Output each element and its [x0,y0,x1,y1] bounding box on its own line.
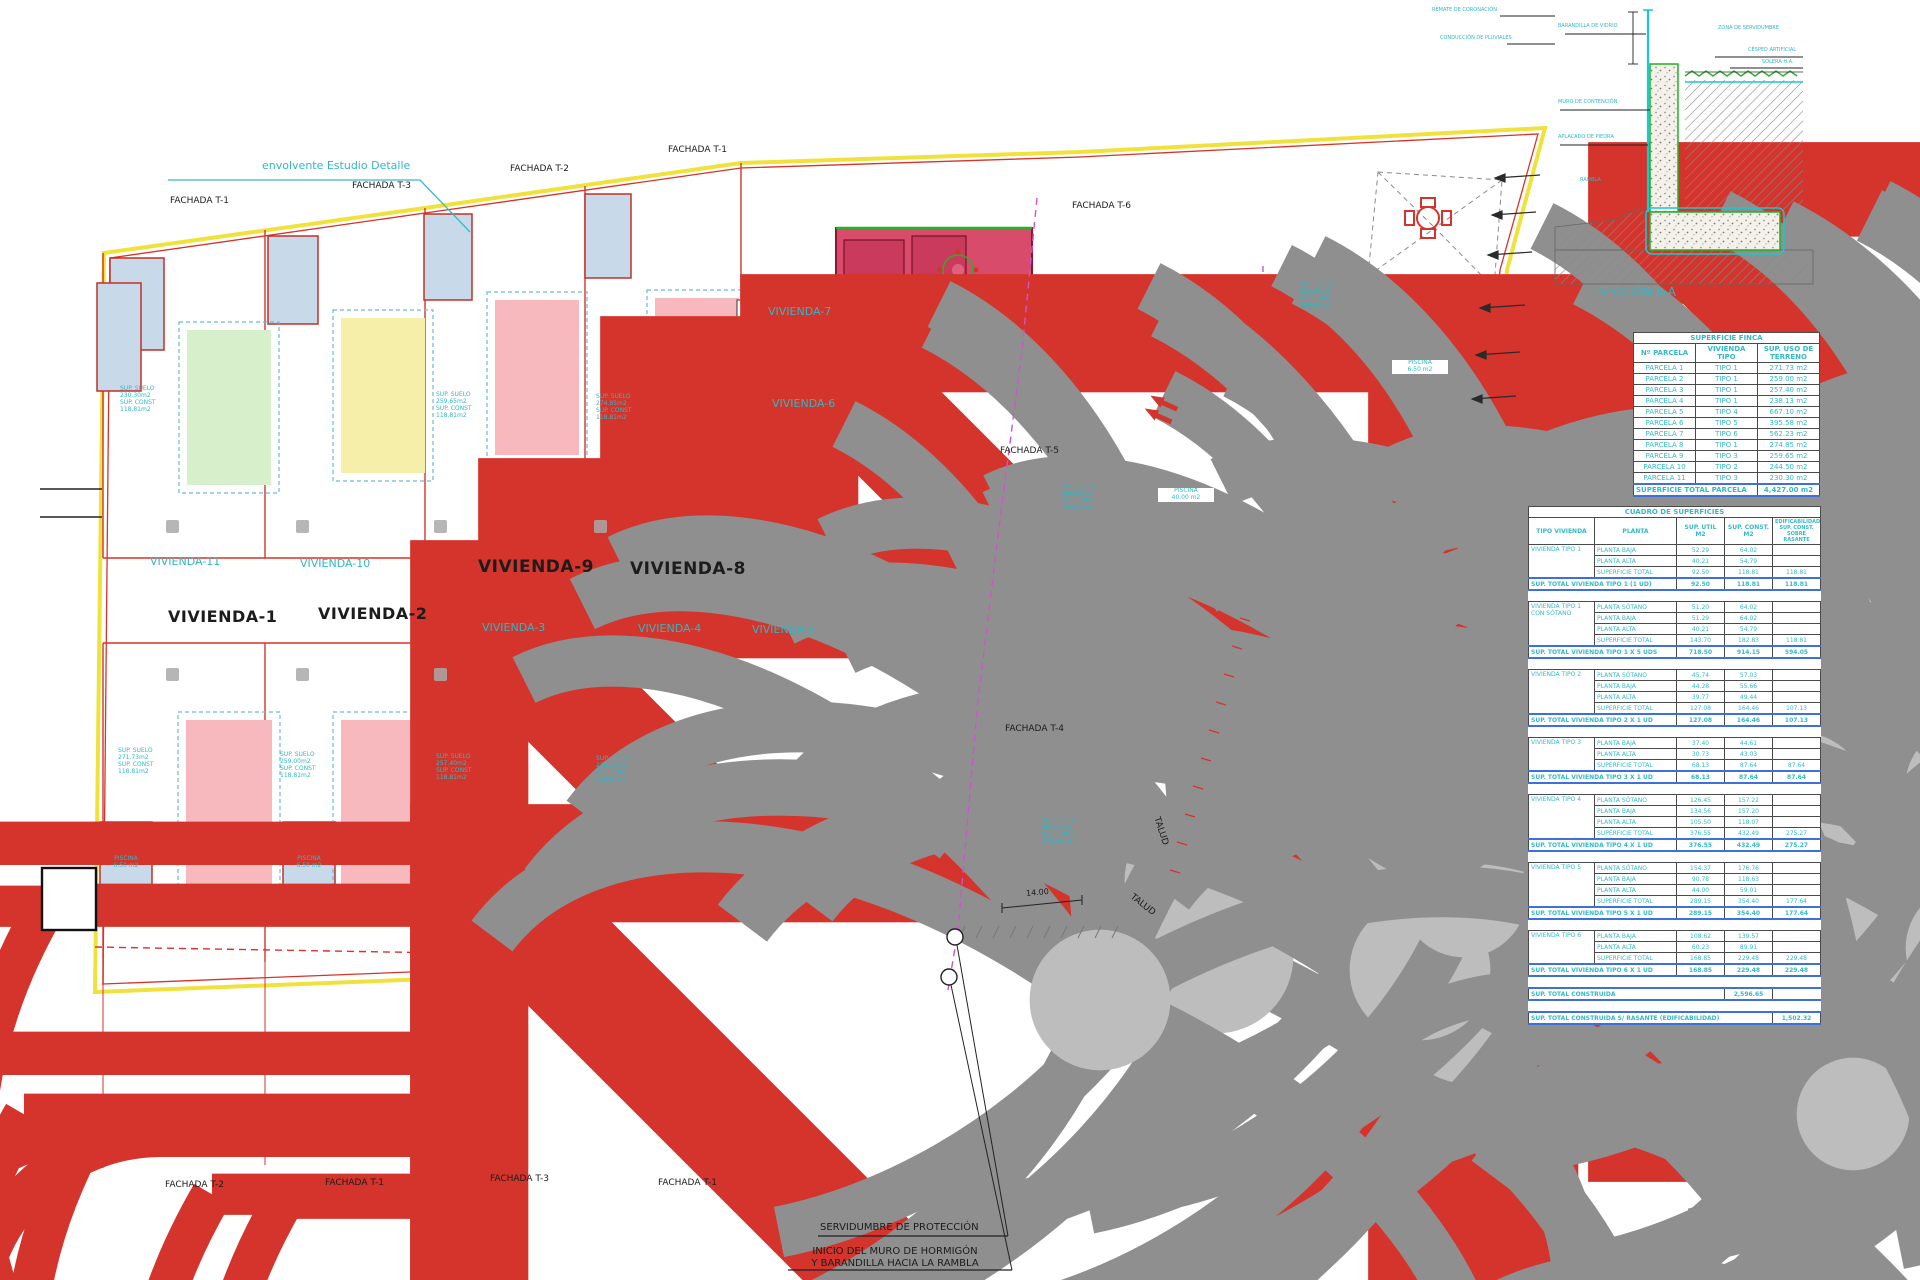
table-spacer [1529,1000,1821,1012]
fachada-top-2: FACHADA T-3 [352,181,411,191]
section-muro-label: MURO DE CONTENCIÓN [1558,100,1617,106]
fachada-bottom-4: FACHADA T-1 [658,1178,717,1188]
fachada-t4: FACHADA T-4 [1005,724,1064,734]
fachada-t6: FACHADA T-6 [1072,201,1131,211]
table-row: SUP. TOTAL VIVIENDA TIPO 1 (1 UD)92.5011… [1529,578,1821,590]
muro-note: INICIO DEL MURO DE HORMIGÓN Y BARANDILLA… [770,1246,1020,1269]
piscina-label-tr: PISCINA 6.50 m2 [1392,360,1448,374]
table-row: PARCELA 7TIPO 6562.23 m2 [1634,429,1820,440]
left-garage-block [42,868,96,930]
table-row: SUP. TOTAL VIVIENDA TIPO 2 X 1 UD127.081… [1529,714,1821,726]
patio-table [1405,198,1451,238]
sup-label-2: SUP. SUELO 259.65m2 SUP. CONST 118.81m2 [436,392,472,420]
envolvente-note: envolvente Estudio Detalle [262,160,410,173]
vivienda-6-label: VIVIENDA-6 [772,398,835,411]
sup-label-1: SUP. SUELO 230.30m2 SUP. CONST 118.81m2 [120,386,156,414]
table-row: VIVIENDA TIPO 1 CON SÓTANOPLANTA SÓTANO5… [1529,602,1821,613]
section-cut-marks [40,489,102,517]
table-row: TIPO VIVIENDAPLANTASUP. UTIL M2SUP. CONS… [1529,518,1821,545]
table-row: PARCELA 11TIPO 3230.30 m2 [1634,473,1820,485]
table-spacer [1529,658,1821,670]
vivienda-3-label: VIVIENDA-3 [482,622,545,635]
section-solera-label: SOLERA H.A. [1762,60,1794,66]
table-row: PARCELA 9TIPO 3259.65 m2 [1634,451,1820,462]
sup-label-6: SUP. SUELO 667.10m2 SUP. CONST 275.05m2 [1042,818,1078,846]
fachada-bottom-1: FACHADA T-2 [165,1180,224,1190]
vivienda-8-label: VIVIENDA-8 [630,560,746,580]
table-row: PARCELA 10TIPO 2244.50 m2 [1634,462,1820,473]
sup-label-7: SUP. SUELO 271.73m2 SUP. CONST 118.81m2 [118,748,154,776]
table-row: VIVIENDA TIPO 5PLANTA SÓTANO154.37176.76 [1529,863,1821,874]
sup-label-9: SUP. SUELO 257.40m2 SUP. CONST 118.81m2 [436,754,472,782]
section-remate-label: REMATE DE CORONACIÓN [1432,8,1497,14]
fachada-bottom-2: FACHADA T-1 [325,1178,384,1188]
section-barandilla-label: BARANDILLA DE VIDRIO [1558,24,1634,30]
table-row: CUADRO DE SUPERFICIES [1529,507,1821,518]
section-rambla-label: RAMBLA [1580,178,1601,184]
section-conduccion-label: CONDUCCIÓN DE PLUVIALES [1440,36,1512,42]
fachada-top-1: FACHADA T-1 [170,196,229,206]
table-row: VIVIENDA TIPO 3PLANTA BAJA37.4044.61 [1529,738,1821,749]
site-plan-sheet: envolvente Estudio Detalle FACHADA T-1 F… [0,0,1920,1280]
vivienda-4-label: VIVIENDA-4 [638,623,701,636]
section-aplacado-label: APLACADO DE PIEDRA [1558,135,1614,141]
vivienda-11-label: VIVIENDA-11 [150,556,220,569]
piscina-label-b2: PISCINA 6.50 m2 [285,856,333,870]
table-row: SUP. TOTAL CONSTRUIDA2,596.65 [1529,988,1821,1000]
vivienda-7-label: VIVIENDA-7 [768,306,831,319]
vivienda-10-label: VIVIENDA-10 [300,558,370,571]
table-row: VIVIENDA TIPO 4PLANTA SÓTANO126.45157.22 [1529,795,1821,806]
table-spacer [1529,590,1821,602]
vivienda-1-label: VIVIENDA-1 [168,608,277,626]
table-row: VIVIENDA TIPO 1PLANTA BAJA52.2964.02 [1529,545,1821,556]
sup-label-10: SUP. SUELO 238.13m2 SUP. CONST 118.81m2 [596,756,632,784]
table-row: Nº PARCELAVIVIENDA TIPOSUP. USO DE TERRE… [1634,344,1820,363]
table-row: VIVIENDA TIPO 6PLANTA BAJA108.62139.57 [1529,931,1821,942]
table-spacer [1529,851,1821,863]
fachada-t5: FACHADA T-5 [1000,446,1059,456]
fachada-top-3: FACHADA T-2 [510,164,569,174]
superficie-finca-table: SUPERFICIE FINCANº PARCELAVIVIENDA TIPOS… [1633,332,1820,497]
table-row: SUP. TOTAL VIVIENDA TIPO 5 X 1 UD289.153… [1529,907,1821,919]
piscina-big-label: PISCINA 40.00 m2 [1158,488,1214,502]
table-row: SUPERFICIE FINCA [1634,333,1820,344]
section-cesped-label: CÉSPED ARTIFICIAL [1748,48,1796,54]
table-row: VIVIENDA TIPO 2PLANTA SÓTANO45.7457.03 [1529,670,1821,681]
table-row: PARCELA 3TIPO 1257.40 m2 [1634,385,1820,396]
table-row: SUP. TOTAL CONSTRUIDA S/ RASANTE (EDIFIC… [1529,1012,1821,1024]
table-row: SUPERFICIE TOTAL PARCELA4,427.00 m2 [1634,484,1820,496]
section-title: SECCIÓN A-A [1598,286,1676,300]
cuadro-superficies-table: CUADRO DE SUPERFICIESTIPO VIVIENDAPLANTA… [1528,506,1821,1025]
table-row: PARCELA 6TIPO 5395.58 m2 [1634,418,1820,429]
table-row: SUP. TOTAL VIVIENDA TIPO 1 X 5 UDS718.50… [1529,646,1821,658]
servidumbre-note: SERVIDUMBRE DE PROTECCIÓN [820,1222,979,1234]
table-spacer [1529,783,1821,795]
fachada-bottom-3: FACHADA T-3 [490,1174,549,1184]
table-row: PARCELA 1TIPO 1271.73 m2 [1634,363,1820,374]
sup-label-4: SUP. SUELO 523.35m2 SUP. CONST 229.63m2 [1300,282,1336,310]
vivienda-9-label: VIVIENDA-9 [478,558,594,578]
sup-label-8: SUP. SUELO 259.00m2 SUP. CONST 118.81m2 [280,752,316,780]
table-row: SUP. TOTAL VIVIENDA TIPO 4 X 1 UD376.554… [1529,839,1821,851]
table-spacer [1529,976,1821,988]
table-row: SUP. TOTAL VIVIENDA TIPO 3 X 1 UD68.1387… [1529,771,1821,783]
sup-label-5: SUP. SUELO 395.58m2 SUP. CONST 178.40m2 [1062,484,1098,512]
sup-label-3: SUP. SUELO 274.85m2 SUP. CONST 118.81m2 [596,394,632,422]
table-row: PARCELA 8TIPO 1274.85 m2 [1634,440,1820,451]
vivienda-2-label: VIVIENDA-2 [318,605,427,623]
table-spacer [1529,726,1821,738]
section-zona-label: ZONA DE SERVIDUMBRE [1718,26,1779,32]
table-row: PARCELA 4TIPO 1238.13 m2 [1634,396,1820,407]
table-row: SUP. TOTAL VIVIENDA TIPO 6 X 1 UD168.852… [1529,964,1821,976]
table-spacer [1529,919,1821,931]
table-row: PARCELA 5TIPO 4667.10 m2 [1634,407,1820,418]
table-row: PARCELA 2TIPO 1259.00 m2 [1634,374,1820,385]
vivienda-5-label: VIVIENDA-5 [752,624,815,637]
piscina-label-b1: PISCINA 6.50 m2 [102,856,150,870]
fachada-top-4: FACHADA T-1 [668,145,727,155]
